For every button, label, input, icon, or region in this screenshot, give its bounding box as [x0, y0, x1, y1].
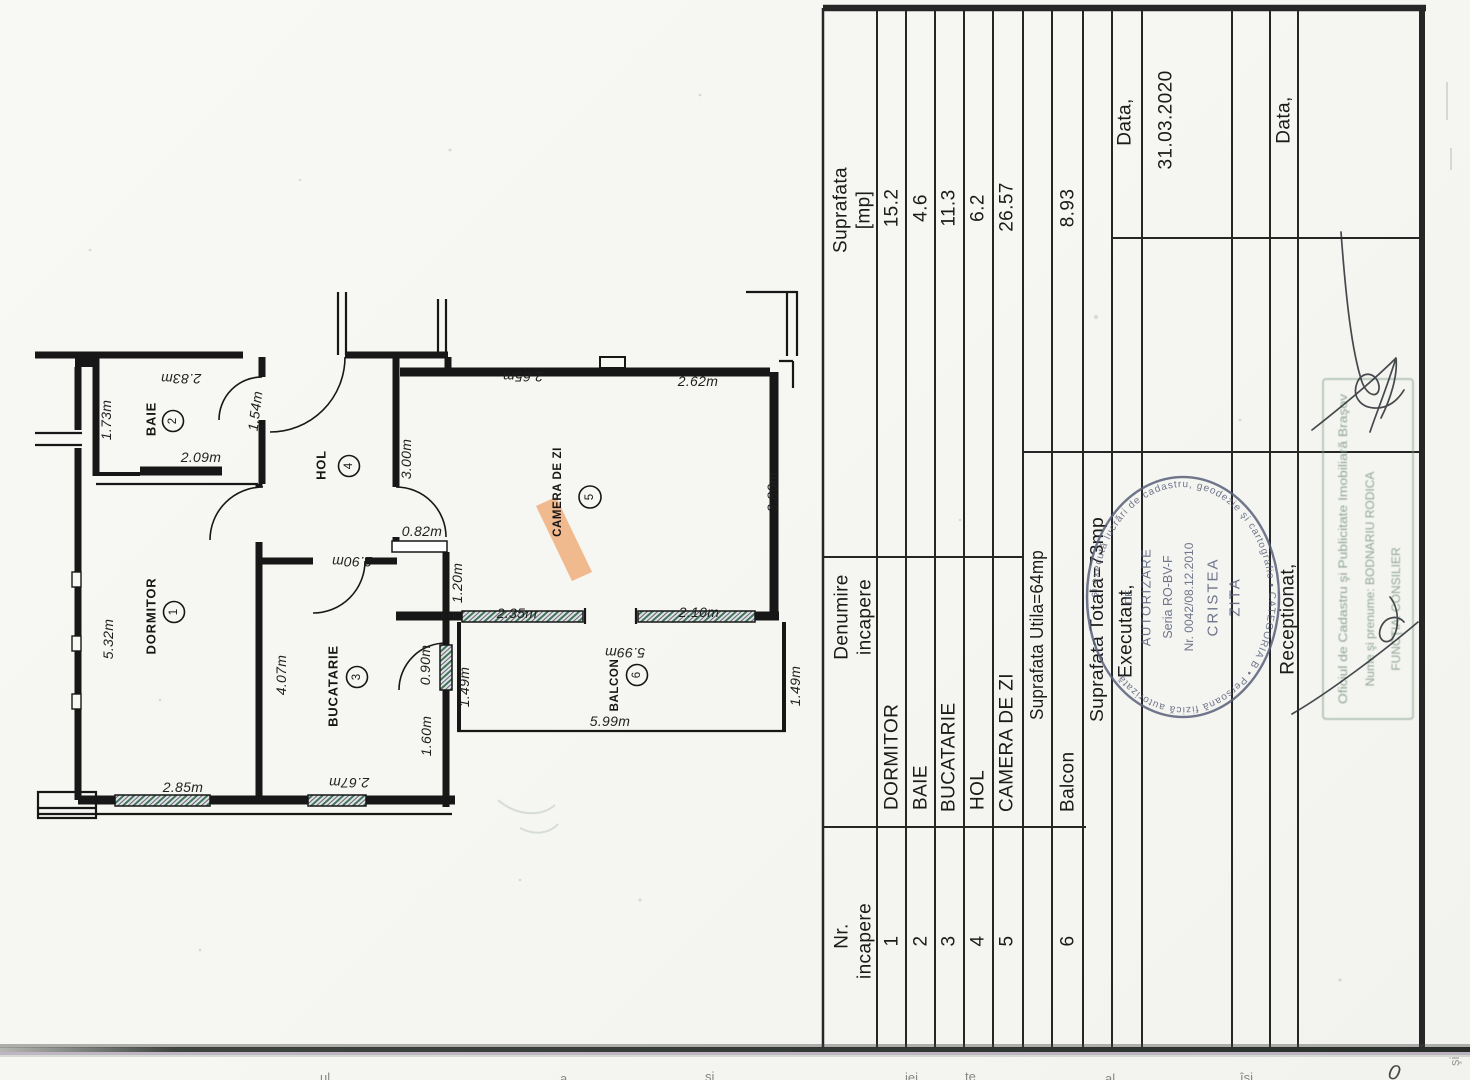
office-stamp-line-2: Nume şi prenume: BODNARIU RODICA	[1363, 472, 1377, 687]
window-sill	[392, 541, 447, 552]
door-arc-dormitor	[210, 487, 263, 540]
dim-balcon-bottom: 5.99m	[590, 713, 630, 729]
header-nr-2: incapere	[855, 903, 876, 979]
floor-plan: DORMITOR 1 BAIE 2 BUCATARIE 3 HOL 4 CAME…	[35, 291, 803, 833]
cell-name-5: CAMERA DE ZI	[997, 673, 1018, 812]
stamp-line-seria: Seria RO-BV-F	[1161, 555, 1175, 639]
dim-hol-sill: 0.82m	[402, 523, 442, 539]
handwritten-zero: 0	[1386, 1060, 1403, 1080]
room-label-hol: HOL	[314, 450, 329, 480]
dim-hol-passage: 1.20m	[449, 563, 465, 603]
dim-hol-width: 2.90m	[332, 554, 373, 570]
stamp-line-de: DE	[1123, 590, 1135, 605]
dim-strip-left: 1.49m	[456, 667, 472, 707]
dim-hol-height: 3.00m	[398, 439, 414, 479]
cell-nr-6: 6	[1058, 936, 1079, 947]
cell-name-6: Balcon	[1058, 752, 1079, 813]
releveu-document: DORMITOR 1 BAIE 2 BUCATARIE 3 HOL 4 CAME…	[0, 0, 1470, 1080]
room-number-camera-de-zi: 5	[584, 494, 596, 500]
table-grid	[823, 8, 1426, 1047]
cell-area-3: 11.3	[939, 189, 960, 226]
wall-notch	[72, 636, 81, 651]
room-label-dormitor: DORMITOR	[144, 578, 159, 655]
room-label-camera-de-zi: CAMERA DE ZI	[552, 447, 564, 537]
label-data-1: Data,	[1115, 98, 1136, 145]
label-receptionat: Receptionat,	[1278, 563, 1299, 674]
cell-name-4: HOL	[968, 770, 989, 810]
summary-suprafata-utila: Suprafata Utila=64mp	[1027, 550, 1047, 720]
top-wall-notch	[600, 357, 625, 368]
dim-balcon-top: 5.99m	[605, 645, 645, 661]
dim-baie-width: 2.83m	[161, 371, 202, 387]
wall-segments-interior	[35, 355, 448, 807]
dim-baie-height: 1.73m	[98, 400, 114, 440]
dim-dormitor-height: 5.32m	[100, 619, 116, 659]
dim-dormitor-right: 4.07m	[273, 655, 289, 695]
signature-stroke	[1312, 358, 1396, 432]
edge-fragment: a	[560, 1071, 568, 1080]
dim-camera-bottom-right: 2.10m	[678, 604, 719, 620]
cell-area-5: 26.57	[997, 182, 1018, 232]
header-suprafata-unit: [mp]	[854, 191, 875, 230]
signature-stroke	[1381, 358, 1396, 418]
dim-dormitor-width: 2.85m	[162, 779, 203, 795]
wall-jog-block	[75, 357, 97, 367]
window-bucatarie-right	[440, 645, 452, 690]
scanned-floor-plan-sheet: DORMITOR 1 BAIE 2 BUCATARIE 3 HOL 4 CAME…	[0, 0, 1470, 1080]
window-dormitor	[115, 795, 210, 806]
stamp-line-cristea: CRISTEA	[1205, 557, 1222, 636]
page-fold-line	[0, 1044, 1470, 1057]
edge-side-fragment: şi	[1447, 1057, 1462, 1067]
wall-notch	[72, 694, 81, 709]
office-stamp: Oficiul de Cadastru şi Publicitate Imobi…	[1323, 379, 1413, 719]
margin-artifact	[1447, 82, 1451, 170]
cell-nr-3: 3	[939, 936, 960, 947]
table-text: Suprafata [mp] Denumire incapere Nr. inc…	[831, 70, 1299, 979]
edge-fragment: al	[1105, 1071, 1115, 1080]
edge-fragment: ul	[320, 1070, 330, 1080]
cell-name-3: BUCATARIE	[939, 702, 960, 812]
stamp-line-autorizare: AUTORIZARE	[1139, 548, 1154, 647]
dim-bucatarie-right: 1.60m	[418, 716, 434, 756]
stamp-line-zita: ZITA	[1227, 577, 1244, 616]
header-denumire-2: incapere	[855, 579, 876, 655]
edge-fragment: şi	[705, 1069, 715, 1080]
round-stamp-lines: DE AUTORIZARE Seria RO-BV-F Nr. 0042/08.…	[1123, 542, 1244, 651]
stamp-line-nr: Nr. 0042/08.12.2010	[1182, 542, 1196, 651]
orange-highlight-mark	[536, 497, 592, 581]
cell-name-2: BAIE	[911, 765, 932, 810]
cell-area-4: 6.2	[968, 194, 989, 222]
room-label-baie: BAIE	[144, 402, 159, 436]
edge-fragment: te	[965, 1069, 976, 1080]
cell-area-1: 15.2	[882, 189, 903, 228]
table-band-lines	[823, 238, 1422, 827]
cell-nr-1: 1	[882, 936, 903, 947]
value-date: 31.03.2020	[1156, 70, 1177, 169]
room-number-bucatarie: 3	[351, 674, 363, 680]
room-label-balcon: BALCON	[609, 659, 621, 712]
dim-balcon-right: 1.49m	[787, 666, 803, 706]
office-stamp-line-1: Oficiul de Cadastru şi Publicitate Imobi…	[1338, 394, 1350, 704]
dim-bucatarie-door: 0.90m	[417, 645, 433, 685]
bottom-edge-fragments: ul a şi iei te al îşi	[320, 1069, 1253, 1080]
cell-nr-5: 5	[997, 936, 1018, 947]
window-bucatarie	[308, 795, 366, 806]
edge-fragment: îşi	[1239, 1070, 1253, 1080]
room-label-bucatarie: BUCATARIE	[326, 645, 341, 727]
cell-area-6: 8.93	[1058, 189, 1079, 228]
label-data-2: Data,	[1274, 96, 1295, 143]
dim-bucatarie-width: 2.67m	[329, 775, 370, 791]
room-number-balcon: 6	[631, 672, 643, 678]
dim-baie-inner: 2.09m	[180, 449, 221, 465]
dim-camera-top-right: 2.62m	[677, 373, 718, 389]
room-number-dormitor: 1	[168, 609, 180, 615]
header-suprafata: Suprafata	[831, 167, 852, 253]
office-stamp-lines: Oficiul de Cadastru şi Publicitate Imobi…	[1338, 394, 1403, 704]
dim-camera-top-left: 2.65m	[503, 369, 544, 385]
dim-camera-bottom-left: 2.35m	[496, 605, 537, 621]
door-arc-entry	[270, 357, 345, 432]
room-number-hol: 4	[343, 462, 355, 469]
header-denumire: Denumire	[832, 574, 853, 660]
wall-notch	[72, 572, 81, 587]
cell-name-1: DORMITOR	[882, 704, 903, 810]
cell-nr-4: 4	[968, 935, 989, 946]
room-number-baie: 2	[167, 418, 179, 424]
dim-camera-right: 3.80m	[764, 472, 780, 512]
windows	[115, 611, 755, 806]
edge-fragment: iei	[905, 1070, 918, 1080]
rooms-table: Suprafata [mp] Denumire incapere Nr. inc…	[823, 8, 1426, 1047]
cell-nr-2: 2	[911, 936, 932, 947]
bleed-through-marks	[498, 800, 558, 833]
header-nr: Nr.	[832, 923, 853, 948]
cell-area-2: 4.6	[911, 194, 932, 222]
